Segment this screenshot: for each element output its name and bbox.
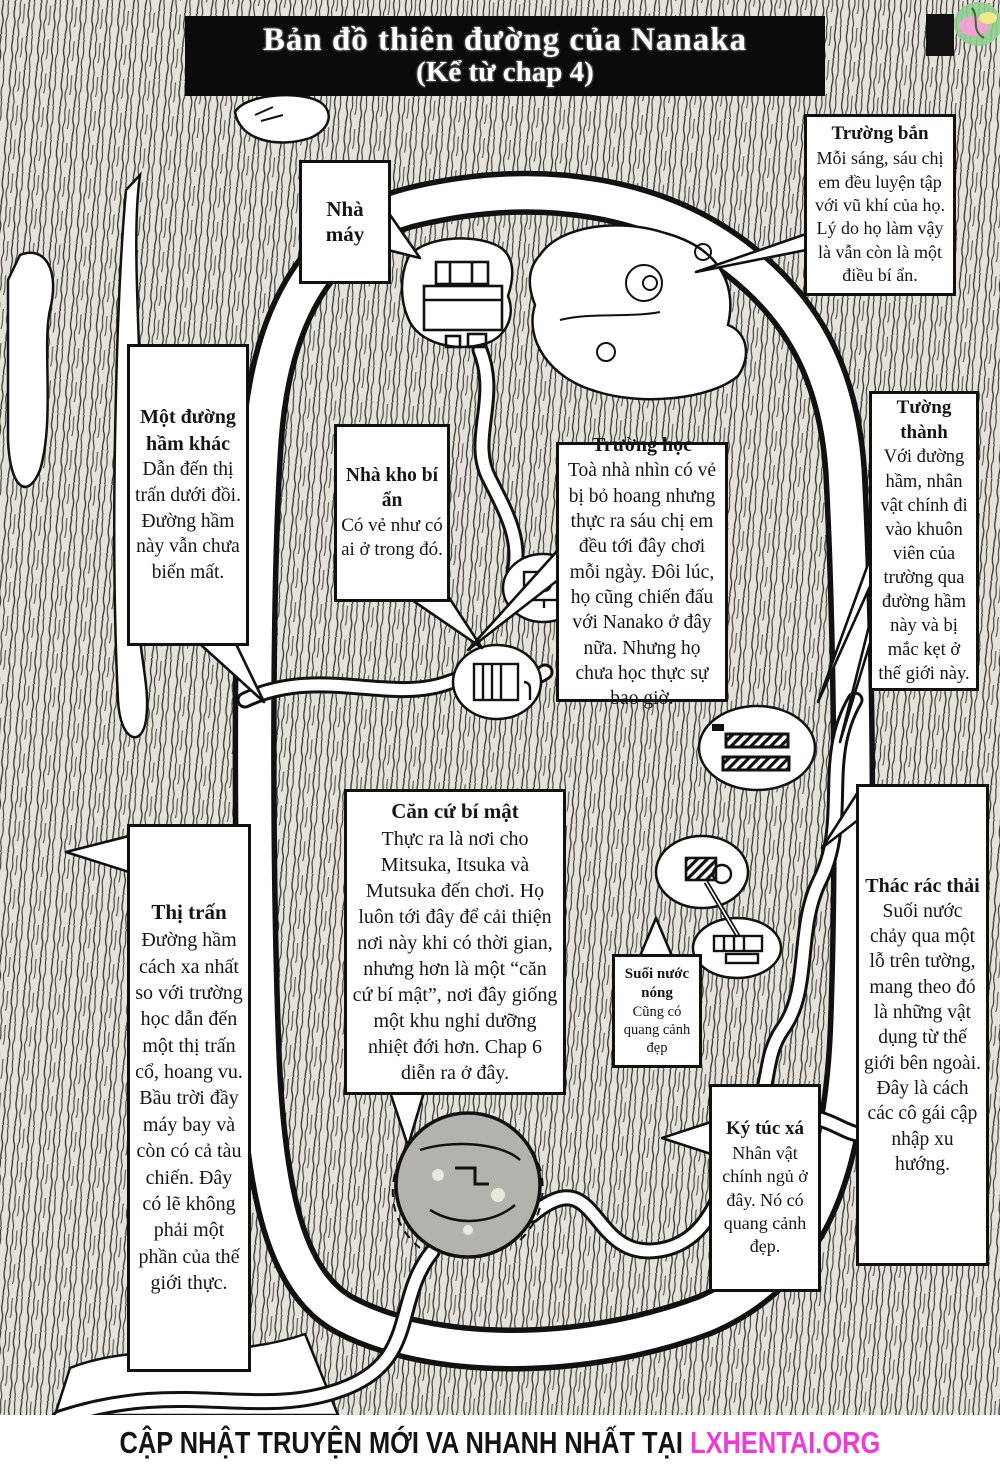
callout-body: Toà nhà nhìn có vẻ bị bỏ hoang nhưng thự… (563, 458, 721, 711)
callout-title: Thị trấn (151, 899, 226, 927)
footer-site-link[interactable]: LXHENTAI.ORG (690, 1425, 880, 1460)
callout-school: Trường học Toà nhà nhìn có vẻ bị bỏ hoan… (556, 442, 728, 702)
callout-title: Ký túc xá (726, 1117, 804, 1142)
callout-body: Mỗi sáng, sáu chị em đều luyện tập với v… (811, 147, 949, 287)
callout-body: Đường hầm cách xa nhất so với trường học… (134, 927, 244, 1296)
callout-body: Có vẻ như có ai ở trong đó. (341, 514, 443, 563)
callout-title: Căn cứ bí mật (391, 798, 519, 825)
callout-factory: Nhà máy (299, 160, 391, 284)
callout-trash-waterfall: Thác rác thải Suối nước chảy qua một lỗ … (856, 784, 989, 1266)
footer-bar: CẬP NHẬT TRUYỆN MỚI VA NHANH NHẤT TẠI LX… (0, 1415, 1000, 1471)
page-title: Bản đồ thiên đường của Nanaka (263, 23, 747, 58)
dorm-clearing (693, 918, 781, 978)
manga-map-page: Bản đồ thiên đường của Nanaka (Kể từ cha… (0, 0, 1000, 1471)
callout-title: Một đường hầm khác (134, 404, 242, 457)
callout-body: Cũng có quang cảnh đẹp (619, 1003, 695, 1057)
page-subtitle: (Kể từ chap 4) (416, 57, 594, 89)
callout-dormitory: Ký túc xá Nhân vật chính ngủ ở đây. Nó c… (709, 1084, 821, 1292)
callout-title: Trường học (592, 432, 692, 458)
callout-other-tunnel: Một đường hầm khác Dẫn đến thị trấn dưới… (127, 344, 249, 646)
title-banner: Bản đồ thiên đường của Nanaka (Kể từ cha… (185, 16, 825, 96)
callout-town: Thị trấn Đường hầm cách xa nhất so với t… (127, 824, 251, 1372)
callout-body: Thực ra là nơi cho Mitsuka, Itsuka và Mu… (351, 826, 559, 1086)
callout-secret-base: Căn cứ bí mật Thực ra là nơi cho Mitsuka… (344, 789, 566, 1095)
callout-title: Nhà kho bí ẩn (341, 463, 443, 514)
callout-title: Tường thành (876, 396, 972, 445)
callout-body: Với đường hầm, nhân vật chính đi vào khu… (876, 445, 972, 685)
secret-base-island (393, 1113, 543, 1257)
callout-mysterious-warehouse: Nhà kho bí ẩn Có vẻ như có ai ở trong đó… (334, 424, 450, 602)
callout-title: Nhà máy (306, 197, 384, 247)
callout-title: Thác rác thải (865, 873, 979, 899)
callout-title: Suối nước nóng (619, 965, 695, 1003)
callout-city-wall: Tường thành Với đường hầm, nhân vật chín… (869, 391, 979, 691)
callout-hot-spring: Suối nước nóng Cũng có quang cảnh đẹp (612, 954, 702, 1068)
callout-body: Nhân vật chính ngủ ở đây. Nó có quang cả… (716, 1142, 814, 1259)
callout-body: Dẫn đến thị trấn dưới đồi. Đường hầm này… (134, 457, 242, 586)
callout-shooting-range: Trường bắn Mỗi sáng, sáu chị em đều luyệ… (804, 114, 956, 296)
callout-title: Trường bắn (831, 122, 928, 147)
footer-text: CẬP NHẬT TRUYỆN MỚI VA NHANH NHẤT TẠI (120, 1425, 684, 1460)
callout-body: Suối nước chảy qua một lỗ trên tường, ma… (863, 899, 982, 1178)
